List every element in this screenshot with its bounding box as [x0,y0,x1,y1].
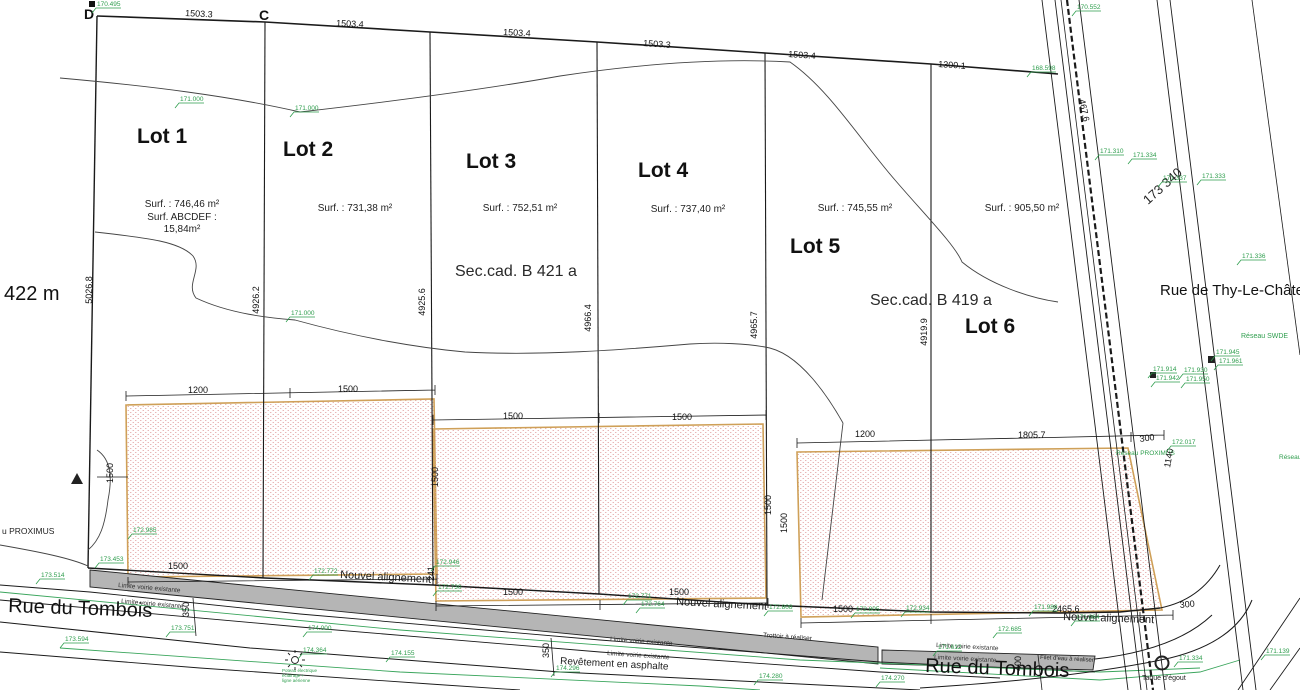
elevation-value: 172.764 [641,601,665,608]
elevation-value: 171.000 [291,310,315,317]
elevation-value: 172.772 [314,568,338,575]
elevation-value: 171.337 [1163,175,1187,182]
cadastral-site-plan: D C Lot 1 Lot 2 Lot 3 Lot 4 Lot 5 Lot 6 … [0,0,1300,690]
point-d-label: D [84,6,94,22]
zone-dimension-label: 1500 [338,384,358,394]
elevation-marker: 174.000 [303,625,332,637]
lot-depth-dimension-label: 4926.2 [251,286,261,314]
boundary-dimension-label: 1503.3 [185,8,213,19]
elevation-value: 171.914 [1153,366,1177,373]
lot5-label: Lot 5 [790,235,840,258]
corner-line-se-1 [1238,598,1300,690]
building-zone-3 [797,448,1162,617]
elevation-leader-line [60,643,89,648]
lot2-label: Lot 2 [283,138,333,161]
elevation-leader-line [298,654,327,659]
zone-dimension-label: 1500 [779,513,789,533]
dim-line-350-mid [551,638,554,676]
boundary-dimension-label: 1300.1 [938,59,966,71]
zone-dimension-label: 1805.7 [1018,430,1046,440]
elevation-marker: 172.764 [636,601,665,613]
building-zones [126,399,1162,617]
zone2-top-dim-line [433,410,766,425]
elevation-marker: 173.453 [95,556,124,568]
elevation-marker: 171.950 [1181,376,1210,388]
elevation-value: 174.364 [303,647,327,654]
lot3-surface: Surf. : 752,51 m² [483,203,558,214]
zone-dimension-label: 1500 [430,467,440,487]
lot1-surface-abcdef-value: 15,84m² [164,224,201,235]
elevation-value: 171.064 [1076,614,1100,621]
elevation-value: 171.334 [1133,152,1157,159]
zone-dimension-label: 300 [1139,432,1155,444]
elevation-marker: 174.270 [876,675,905,687]
elevation-value: 172.771 [628,593,652,600]
left-note-422m: 422 m [4,283,60,305]
elevation-marker: 171.000 [175,96,204,108]
elevation-marker: 171.988 [1029,604,1058,616]
reseau-swde-label: Réseau SWDE [1241,333,1288,340]
lot-depth-dimension-label: 4919.9 [919,318,929,346]
lot5-surface: Surf. : 745,55 m² [818,203,893,214]
elevation-value: 171.942 [1156,375,1180,382]
elevation-leader-line [636,608,665,613]
elevation-value: 172.985 [133,527,157,534]
zone-dimension-label: 1500 [833,604,853,614]
boundary-dimension-label: 1503.4 [336,18,364,29]
elevation-leader-line [92,8,121,13]
elevation-value: 173.453 [100,556,124,563]
elevation-marker: 174.296 [551,665,580,677]
elevation-marker: 171.942 [1151,375,1180,387]
lot1-surface: Surf. : 746,46 m² [145,199,220,210]
zone-dimension-label: 1500 [672,412,692,422]
elevation-value: 172.946 [436,559,460,566]
elevation-value: 174.296 [556,665,580,672]
boundary-dimension-label: 1503.3 [643,38,671,50]
zone-dimension-label: 467.6 [1077,98,1091,122]
elevation-marker: 171.064 [1071,614,1100,626]
elevation-value: 173.594 [65,636,89,643]
lot4-surface: Surf. : 737,40 m² [651,204,726,215]
zone-dimension-label: 1140 [1162,448,1175,469]
elevation-leader-line [290,112,319,117]
elevation-leader-line [36,579,65,584]
elevation-leader-line [764,611,793,616]
sec-cad-421-label: Sec.cad. B 421 a [455,263,577,280]
elevation-value: 171.612 [938,644,962,651]
elevation-leader-line [1197,180,1226,185]
elevation-value: 174.280 [759,673,783,680]
north-boundary [97,16,1058,74]
elevation-marker: 172.772 [309,568,338,580]
zone-dimension-label: 1500 [503,587,523,597]
thy-road-line-ne [1252,0,1300,355]
elevation-leader-line [876,682,905,687]
elevation-leader-line [1237,260,1266,265]
elevation-value: 171.310 [1100,148,1124,155]
elevation-value: 171.333 [1202,173,1226,180]
lot-depth-dimension-label: 4965.7 [749,311,759,339]
elevation-marker: 170.552 [1072,4,1101,16]
elevation-value: 174.000 [308,625,332,632]
elevation-leader-line [175,103,204,108]
elevation-marker: 171.336 [1237,253,1266,265]
elevation-marker: 173.514 [36,572,65,584]
lot1-surface-abcdef: Surf. ABCDEF : [147,212,216,223]
lot-depth-dimension-label: 4966.4 [583,304,593,332]
elevation-marker: 173.594 [60,636,89,648]
zone-dimension-label: 1200 [188,385,208,395]
elevation-marker: 171.000 [290,105,319,117]
boundary-dimension-label: 1503.4 [503,27,531,38]
elevation-value: 172.685 [998,626,1022,633]
thy-road-line-6 [1170,0,1256,690]
elevation-value: 173.514 [41,572,65,579]
elevation-value: 173.751 [171,625,195,632]
elevation-marker: 174.364 [298,647,327,659]
elevation-value: 172.805 [856,606,880,613]
building-zone-2 [433,424,766,601]
elevation-marker: 171.139 [1261,648,1290,660]
elevation-value: 172.017 [1172,439,1196,446]
elevation-leader-line [1261,655,1290,660]
elevation-value: 171.961 [1219,358,1243,365]
elevation-value: 168.598 [1032,65,1056,72]
elevation-value: 171.988 [1034,604,1058,611]
benchmark-triangle-icon [71,473,83,484]
elevation-value: 171.000 [180,96,204,103]
elevation-marker: 171.000 [286,310,315,322]
elevation-marker: 172.685 [993,626,1022,638]
lot2-surface: Surf. : 731,38 m² [318,203,393,214]
elevation-marker: 171.333 [1197,173,1226,185]
lot6-surface: Surf. : 905,50 m² [985,203,1060,214]
lot3-label: Lot 3 [466,150,516,173]
elevation-marker: 171.334 [1174,655,1203,667]
elevation-leader-line [1151,382,1180,387]
road-lower-line [0,652,520,690]
reseau-proximus-left-label: u PROXIMUS [2,526,55,536]
elevation-leader-line [95,563,124,568]
point-c-label: C [259,7,269,23]
building-zone-1 [126,399,437,577]
zone-dimension-label: 350 [541,643,551,658]
elevation-marker: 173.751 [166,625,195,637]
elevation-value: 172.730 [438,584,462,591]
elevation-leader-line [1128,159,1157,164]
elevation-leader-line [303,632,332,637]
elevation-value: 172.808 [769,604,793,611]
reseau-right-label: Réseau [1279,454,1300,461]
lot6-label: Lot 6 [965,315,1015,338]
zone-dimension-label: 1500 [763,495,773,515]
elevation-value: 171.000 [295,105,319,112]
elevation-marker: 171.310 [1095,148,1124,160]
elevation-leader-line [1214,365,1243,370]
elevation-leader-line [1174,662,1203,667]
terrain-lead-in-west [0,545,88,566]
elevation-marker: 171.334 [1128,152,1157,164]
elevation-value: 171.336 [1242,253,1266,260]
thy-road-line-5 [1157,0,1243,690]
elevation-marker: 172.808 [764,604,793,616]
lot-depth-dimension-label: 5026.8 [84,276,94,304]
elevation-value: 171.139 [1266,648,1290,655]
elevation-leader-line [1072,11,1101,16]
zone-dimension-label: 400 [1013,656,1023,671]
lot1-label: Lot 1 [137,125,187,148]
elevation-value: 171.945 [1216,349,1240,356]
zone-dimension-label: 1200 [855,429,875,439]
elevation-marker: 171.961 [1214,358,1243,370]
elevation-marker: 170.495 [92,1,121,13]
elevation-value: 172.934 [906,605,930,612]
elevation-leader-line [166,632,195,637]
elevation-value: 174.155 [391,650,415,657]
elevation-value: 170.552 [1077,4,1101,11]
zone-dimension-label: 1500 [168,561,188,571]
zone-dimension-label: 1500 [503,411,523,421]
zone-dimension-label: 300 [1179,598,1195,610]
street-thy-label: Rue de Thy-Le-Château [1160,282,1300,299]
elevation-leader-line [1095,155,1124,160]
utility-pole-icon [285,650,305,670]
elevation-value: 170.495 [97,1,121,8]
elevation-leader-line [993,633,1022,638]
elevation-value: 174.270 [881,675,905,682]
boundary-dimension-label: 1503.4 [788,49,816,61]
zone1-top-dim-line [126,385,435,401]
elevation-value: 171.334 [1179,655,1203,662]
pole-note-line3: ligne aérienne [282,678,311,683]
road-station-label: 173 340 [1140,165,1185,208]
site-plan-canvas: D C Lot 1 Lot 2 Lot 3 Lot 4 Lot 5 Lot 6 … [0,0,1300,690]
zone-dimension-label: 1500 [105,463,115,483]
lot4-label: Lot 4 [638,159,688,182]
taque-degout-label: Taque d'égout [1142,675,1186,682]
sec-cad-419-label: Sec.cad. B 419 a [870,292,992,309]
lot-depth-dimension-label: 4925.6 [417,288,427,316]
elevation-value: 171.950 [1186,376,1210,383]
elevation-value: 171.930 [1184,367,1208,374]
